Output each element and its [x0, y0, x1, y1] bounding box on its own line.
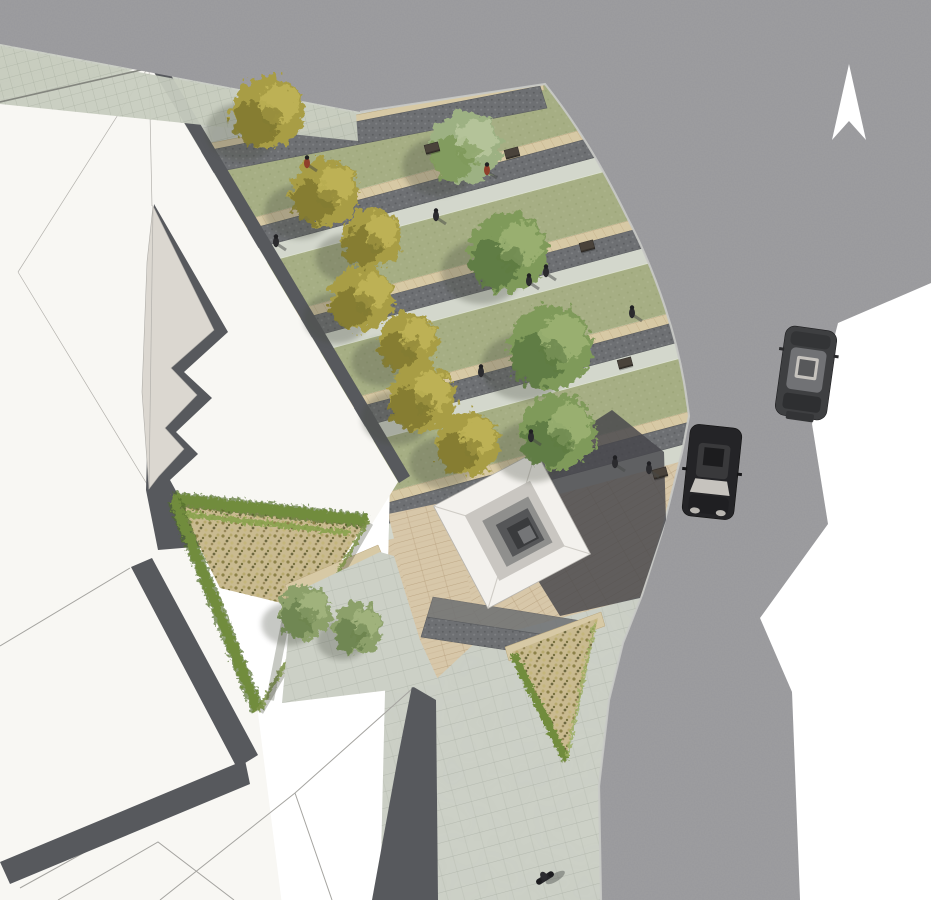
shrub: [333, 603, 383, 653]
site-plan-rendering: [0, 0, 931, 900]
tree-green: [508, 305, 592, 389]
shrub: [278, 585, 332, 639]
tree-autumn: [232, 76, 304, 148]
tree-autumn: [330, 266, 394, 330]
tree-green: [468, 212, 548, 292]
tree-autumn: [291, 158, 359, 226]
tree-autumn: [436, 411, 500, 475]
tree-autumn: [342, 208, 402, 268]
tree-autumn: [378, 312, 438, 372]
site-plan-canvas: [0, 0, 931, 900]
